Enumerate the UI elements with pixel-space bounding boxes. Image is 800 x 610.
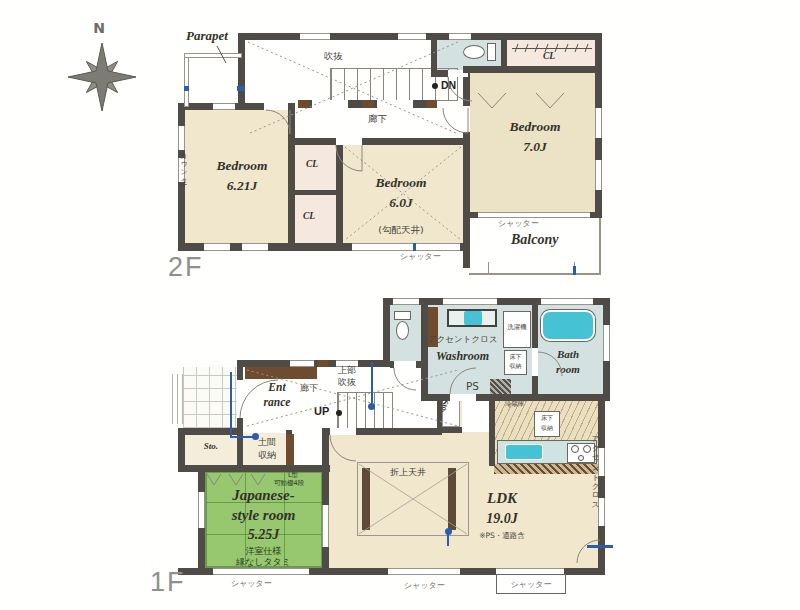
entrance-step <box>245 367 317 379</box>
window <box>393 298 419 305</box>
dimension-mark <box>573 266 576 275</box>
stairs-1f <box>337 392 393 430</box>
window <box>198 492 205 528</box>
door-opening <box>532 348 538 376</box>
ldk-size: 19.0J <box>472 511 532 527</box>
room-size: 7.0J <box>495 137 575 157</box>
window <box>213 568 309 575</box>
window <box>213 103 235 110</box>
window <box>595 160 602 190</box>
ceiling-beam <box>362 468 370 530</box>
window <box>449 33 471 40</box>
wall <box>240 360 390 367</box>
window <box>290 360 314 367</box>
toilet-icon <box>463 45 485 59</box>
wall <box>421 298 428 401</box>
window <box>595 108 602 138</box>
south-shutter-label: シャッター <box>400 251 441 262</box>
wash-basin-icon <box>464 311 482 325</box>
wall <box>288 110 295 251</box>
accent-cloth-side-label: アクセントクロス <box>590 430 600 550</box>
ldk-name: LDK <box>472 490 532 507</box>
dimension-dot <box>368 403 375 410</box>
wall <box>489 394 495 466</box>
wall <box>288 190 343 195</box>
label-line: Ent <box>250 380 304 395</box>
bathroom-label: Bath room <box>544 347 592 377</box>
shutter-right-label: シャッター <box>497 575 565 595</box>
parapet-label: Parapet <box>186 28 228 44</box>
shutter-left-label: シャッター <box>231 578 272 589</box>
balcony-tick <box>488 262 489 275</box>
hallway-1f-label: 廊下 <box>300 382 318 395</box>
balcony-label: Balcony <box>511 232 558 248</box>
bedroom-621-label: Bedroom 6.21J <box>198 156 286 196</box>
opening <box>312 100 348 108</box>
room-name: Bedroom <box>355 173 447 193</box>
wall <box>437 427 462 433</box>
label-line: 吹抜 <box>330 376 364 388</box>
porch-steps <box>172 374 183 424</box>
accent-cloth-label: アクセントクロス <box>428 334 498 346</box>
dimension-mark <box>184 86 189 91</box>
japanese-room-name1: Japanese- <box>210 487 317 504</box>
entrance-porch <box>183 367 237 428</box>
compass-north-label: N <box>88 20 110 36</box>
room-size: 6.0J <box>355 193 447 213</box>
wall <box>383 298 390 367</box>
window <box>300 33 330 40</box>
sliding-door <box>322 505 329 547</box>
balcony-shutter-label: シャッター <box>498 218 539 229</box>
label-line: 収納 <box>249 449 285 462</box>
coffered-ceiling-label: 折上天井 <box>390 466 426 479</box>
ldk-area-note: ※PS・通路含 <box>464 531 540 541</box>
storage-entrance-label: Sto. <box>185 441 237 451</box>
door-opening <box>394 361 416 368</box>
label-line: 収納 <box>504 361 527 370</box>
wall <box>288 138 470 145</box>
washing-machine-label: 洗濯機 <box>502 323 532 332</box>
wall <box>463 66 470 218</box>
closet-low-label: CL <box>303 211 315 221</box>
window <box>541 298 593 305</box>
label-line: 上部 <box>330 364 364 376</box>
sloped-ceiling-note: (勾配天井) <box>355 224 447 237</box>
dn-dot <box>432 83 438 89</box>
label-line: 土間 <box>249 436 285 449</box>
wood-post <box>363 100 374 108</box>
bathtub-icon <box>541 310 595 341</box>
room-name: Bedroom <box>495 117 575 137</box>
window <box>398 33 426 40</box>
bedroom-7-label: Bedroom 7.0J <box>495 117 575 157</box>
room-size: 6.21J <box>198 176 286 196</box>
door-opening <box>237 380 243 418</box>
stairs-up-label: UP <box>314 405 329 417</box>
dimension-mark <box>413 243 416 251</box>
label-line: 床下 <box>534 413 560 423</box>
storage-stairs-label: Sto. <box>440 400 449 413</box>
dimension-line <box>447 533 449 546</box>
doma-storage-label: 土間 収納 <box>249 436 285 462</box>
counter-label: カウンター <box>179 148 188 214</box>
door-opening <box>330 428 356 435</box>
floor-plan: N <box>0 0 800 610</box>
label-line: room <box>544 362 592 377</box>
wall <box>501 33 507 66</box>
door-opening <box>336 138 362 145</box>
parapet-wall <box>184 53 242 58</box>
shutter-mid-label: シャッター <box>404 580 445 591</box>
opening <box>377 100 413 108</box>
washroom-label: Washroom <box>436 349 489 364</box>
closet-top-label: CL <box>543 51 555 61</box>
closet-low-room <box>295 195 336 243</box>
underfloor-storage-washroom-label: 床下 収納 <box>504 352 527 370</box>
ceiling-beam <box>448 468 456 530</box>
label-line: rance <box>250 395 304 410</box>
wood-post <box>318 360 328 367</box>
window <box>242 243 268 251</box>
wood-door <box>286 434 294 468</box>
dimension-mark <box>237 86 245 91</box>
window <box>178 126 185 150</box>
kitchen-sink-icon <box>505 444 543 460</box>
wood-post <box>426 100 437 108</box>
bedroom-6-label: Bedroom 6.0J <box>355 173 447 213</box>
window <box>388 568 460 575</box>
label-line: Bath <box>544 347 592 362</box>
passage <box>462 401 490 432</box>
underfloor-storage-kitchen-label: 床下 収納 <box>534 413 560 433</box>
toilet-icon <box>396 321 409 340</box>
closet-mid-label: CL <box>306 159 318 169</box>
toilet-tank-icon <box>394 311 411 320</box>
room-name: Bedroom <box>198 156 286 176</box>
dimension-line <box>230 372 232 436</box>
door-opening <box>463 106 470 132</box>
refrigerator-label: 冷蔵庫 <box>505 400 525 409</box>
up-dot <box>336 410 342 416</box>
parapet-wall <box>184 53 189 107</box>
dimension-line <box>371 362 373 407</box>
door-opening <box>450 394 476 401</box>
window <box>443 298 497 305</box>
closet-rod <box>512 48 592 49</box>
label-line: 床下 <box>504 352 527 361</box>
wood-post <box>298 100 309 108</box>
window <box>204 243 230 251</box>
door-opening <box>264 103 288 110</box>
entrance-label: Ent rance <box>250 380 304 410</box>
wall <box>178 428 243 435</box>
japanese-room-name2: style room <box>210 507 317 524</box>
shutter-right-box: シャッター <box>496 574 566 594</box>
japanese-room-tatami-note: 縁なしタタミ <box>210 556 317 569</box>
wall <box>238 33 245 110</box>
stairs-down-label: DN <box>441 79 456 91</box>
wall <box>336 145 343 251</box>
compass-icon <box>62 25 142 117</box>
counter-front <box>494 464 603 474</box>
hallway-2f-label: 廊下 <box>368 113 387 126</box>
toilet-tank-icon <box>487 43 496 61</box>
upper-void-label: 上部 吹抜 <box>330 364 364 388</box>
floor-1-label: 1F <box>150 567 186 598</box>
floor-2-label: 2F <box>168 252 204 283</box>
pipe-space-label: PS <box>466 380 479 392</box>
japanese-room-size: 5.25J <box>210 527 317 543</box>
window <box>352 243 460 251</box>
label-line: 収納 <box>534 423 560 433</box>
wall <box>463 66 602 73</box>
window <box>603 325 610 361</box>
void-label: 吹抜 <box>324 50 343 63</box>
